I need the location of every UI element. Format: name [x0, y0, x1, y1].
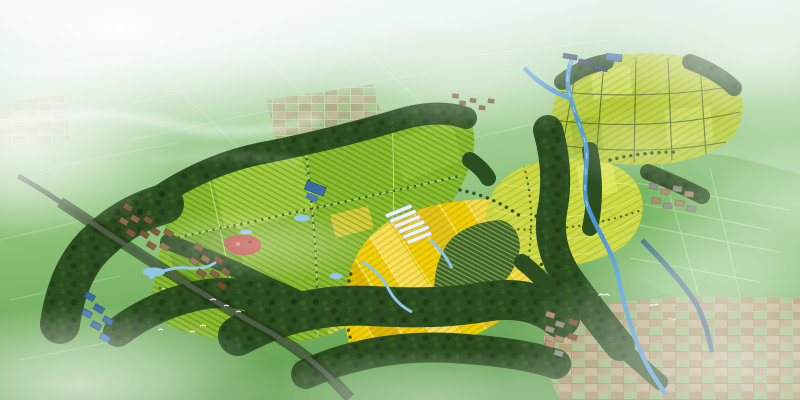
aerial-masterplan-rendering: [0, 0, 800, 400]
mist-wisp-center-left: [125, 207, 385, 283]
scene-canvas: [0, 0, 800, 400]
mist-wisp-right: [553, 106, 743, 190]
